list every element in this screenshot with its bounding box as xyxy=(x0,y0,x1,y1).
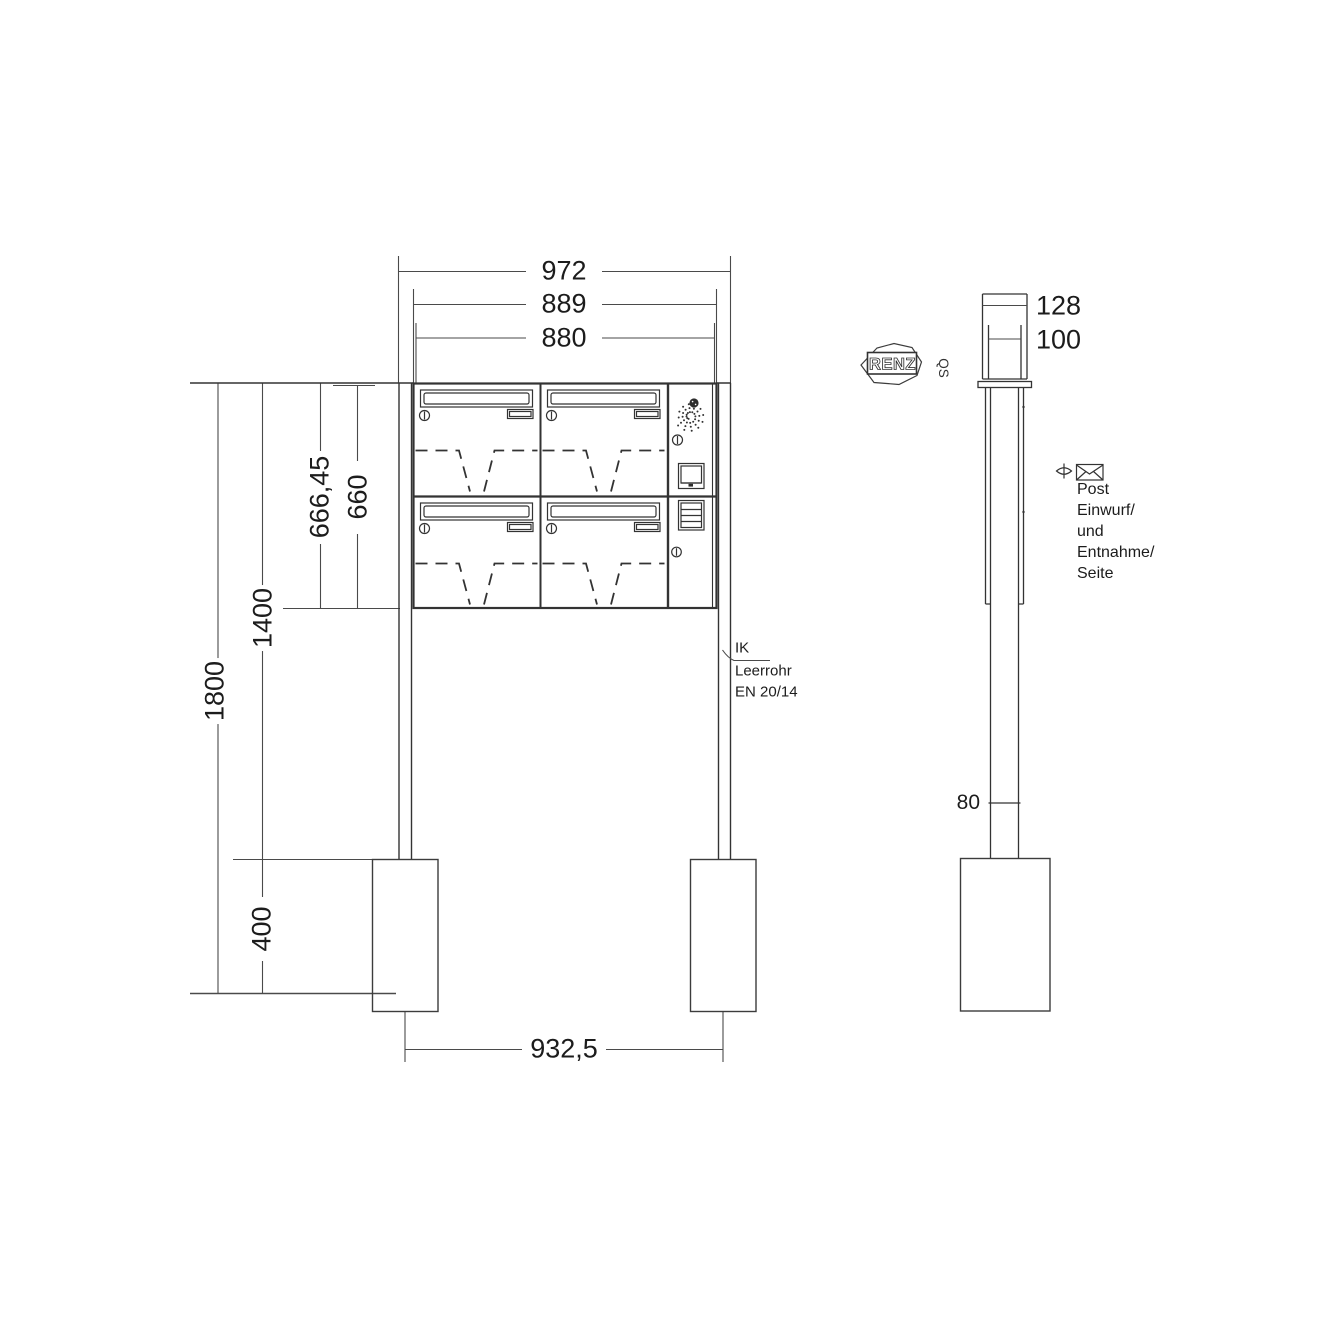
conduit-note-line2: Leerrohr xyxy=(735,663,792,680)
side-channel xyxy=(986,388,1024,605)
letter-slot xyxy=(424,393,529,404)
chute-dashed-lines xyxy=(543,451,665,492)
brand-logo: RENZ QS xyxy=(861,344,951,385)
speaker-dot-icon xyxy=(689,398,698,407)
logo-text: RENZ xyxy=(869,356,916,374)
envelope-icon xyxy=(1077,465,1104,481)
dim-top-to-foundation: 1400 xyxy=(248,585,279,651)
dim-overall-width: 972 xyxy=(538,256,589,287)
foundation-block-right xyxy=(691,860,757,1012)
letter-slot xyxy=(551,506,656,517)
dim-trim-height: 666,45 xyxy=(305,453,336,542)
dim-conduit-height: 80 xyxy=(954,791,983,815)
foundation-block-left xyxy=(373,860,439,1012)
dim-body-width: 880 xyxy=(538,323,589,354)
mailbox-cell-2 xyxy=(543,390,665,492)
chute-dashed-lines xyxy=(543,564,665,605)
chute-dashed-lines xyxy=(416,564,538,605)
access-note-line1: Post xyxy=(1077,481,1109,499)
access-note-line2: Einwurf/ xyxy=(1077,502,1135,520)
dim-total-height: 1800 xyxy=(200,658,231,724)
front-foundations xyxy=(373,860,757,1012)
foundation-block-side xyxy=(961,859,1051,1012)
conduit-note-line3: EN 20/14 xyxy=(735,684,798,701)
side-view xyxy=(961,294,1051,1011)
access-note-line3: und xyxy=(1077,523,1104,541)
side-post xyxy=(991,388,1019,859)
cabinet xyxy=(414,384,717,609)
name-plate xyxy=(508,523,534,532)
dim-body-depth: 100 xyxy=(1033,325,1084,356)
drawing-linework: RENZ QS xyxy=(0,0,1320,1320)
chute-dashed-lines xyxy=(416,451,538,492)
side-cabinet-outline xyxy=(983,294,1028,379)
dim-body-height: 660 xyxy=(343,471,374,522)
mailbox-cell-3 xyxy=(416,503,538,605)
name-plate xyxy=(508,410,534,419)
name-plate xyxy=(635,410,661,419)
dim-overall-depth: 128 xyxy=(1033,291,1084,322)
technical-drawing-letterbox: RENZ QS 972 889 880 666,45 660 1400 1800… xyxy=(0,0,1320,1320)
dim-foundation-depth: 400 xyxy=(247,903,278,954)
qs-label: QS xyxy=(936,358,951,378)
access-note-line4: Entnahme/ xyxy=(1077,544,1154,562)
mounting-flange xyxy=(978,382,1032,388)
letter-slot xyxy=(551,393,656,404)
name-plate xyxy=(635,523,661,532)
mailbox-cell-1 xyxy=(416,390,538,492)
access-note-line5: Seite xyxy=(1077,565,1113,583)
front-post-left xyxy=(399,383,412,859)
speaker-grille-icon xyxy=(677,403,704,431)
dim-anchor-spacing: 932,5 xyxy=(527,1034,601,1065)
intercom-column xyxy=(672,398,705,556)
side-cabinet-body xyxy=(989,325,1022,379)
access-icons xyxy=(1057,464,1104,481)
letter-slot xyxy=(424,506,529,517)
mailbox-cell-4 xyxy=(543,503,665,605)
front-post-right xyxy=(719,383,731,859)
dim-trim-width: 889 xyxy=(538,289,589,320)
conduit-note-line1: IK xyxy=(735,640,749,657)
